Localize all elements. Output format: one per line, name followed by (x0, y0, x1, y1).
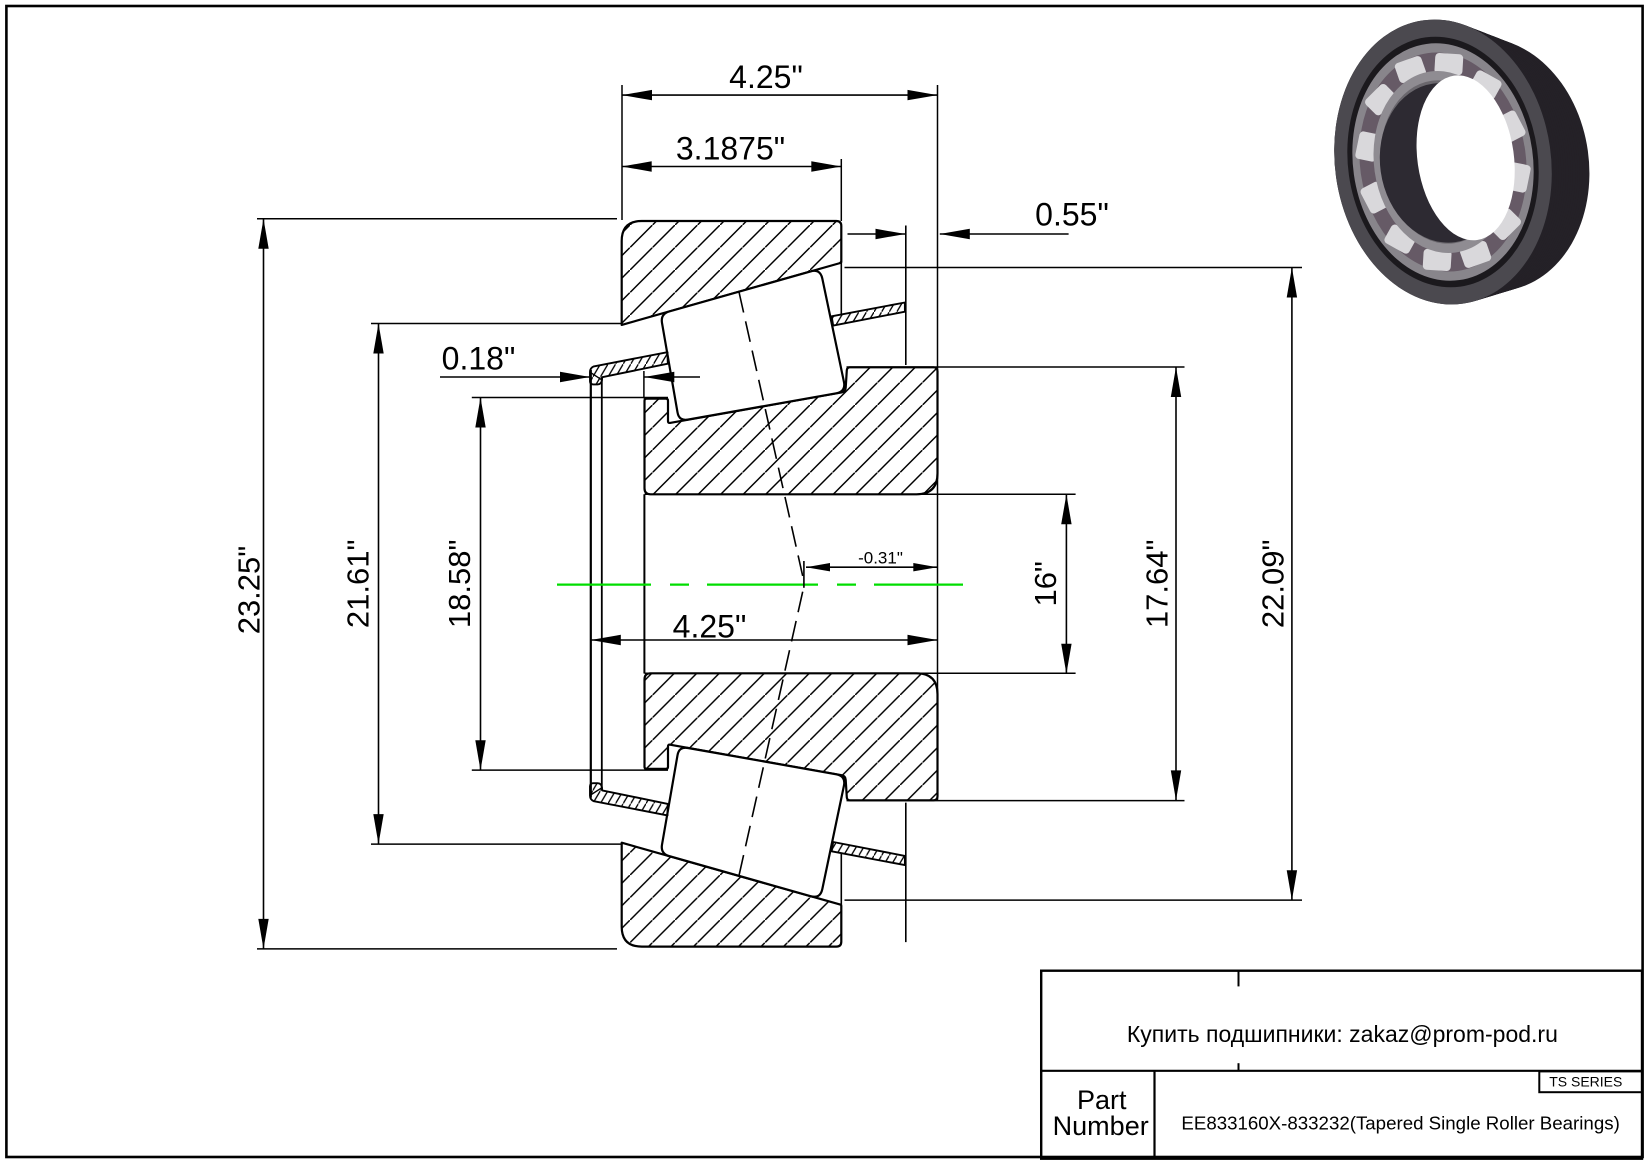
svg-text:0.18": 0.18" (442, 341, 516, 377)
svg-text:21.61": 21.61" (341, 540, 376, 629)
svg-text:4.25": 4.25" (729, 59, 803, 95)
svg-text:Купить подшипники: zakaz@prom-: Купить подшипники: zakaz@prom-pod.ru (1127, 1021, 1558, 1047)
svg-text:17.64": 17.64" (1140, 540, 1175, 629)
svg-text:18.58": 18.58" (442, 540, 477, 629)
svg-text:-0.31": -0.31" (858, 549, 903, 568)
svg-text:23.25": 23.25" (232, 546, 267, 635)
svg-text:22.09": 22.09" (1256, 540, 1291, 629)
svg-text:4.25": 4.25" (673, 609, 747, 645)
svg-text:EE833160X-833232(Tapered Singl: EE833160X-833232(Tapered Single Roller B… (1181, 1113, 1619, 1134)
svg-text:TS SERIES: TS SERIES (1549, 1074, 1622, 1090)
svg-text:3.1875": 3.1875" (676, 131, 785, 167)
svg-text:Number: Number (1053, 1111, 1149, 1141)
svg-text:16": 16" (1028, 561, 1063, 607)
svg-text:0.55": 0.55" (1035, 197, 1109, 233)
